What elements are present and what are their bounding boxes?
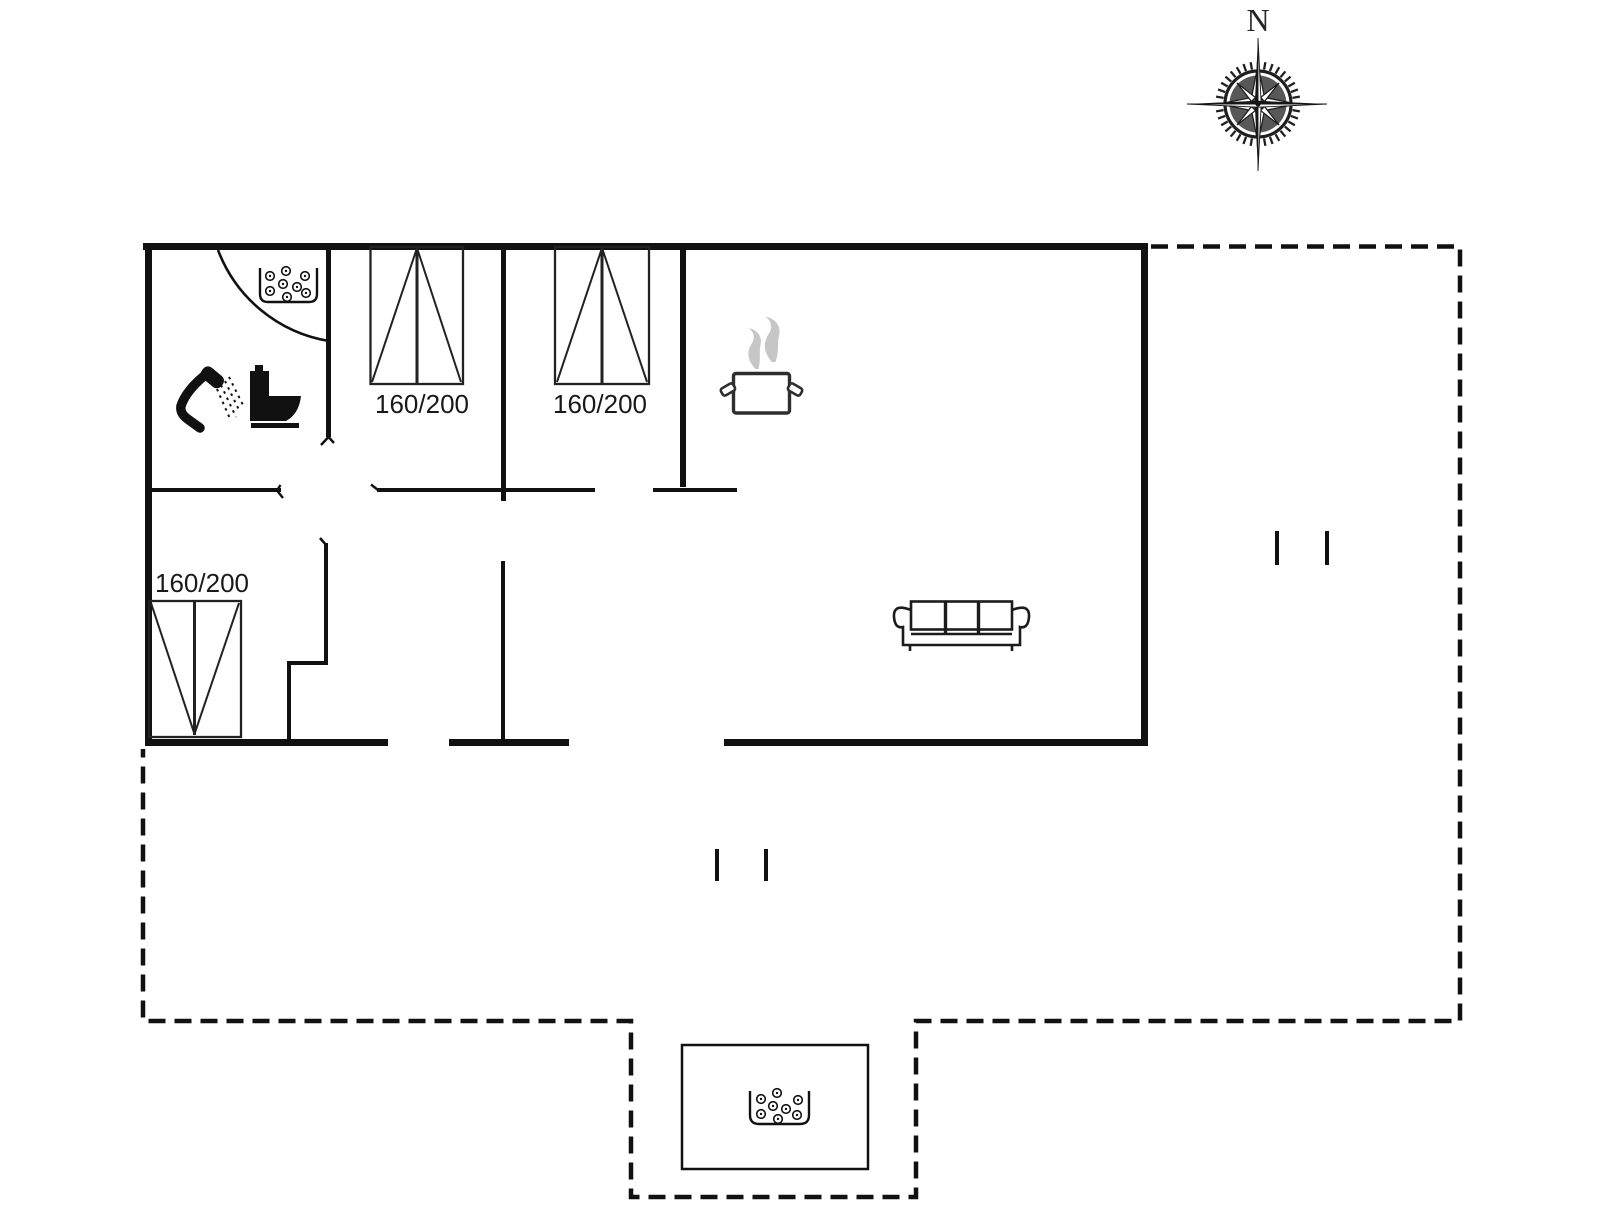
svg-text:160/200: 160/200 [155, 568, 249, 598]
svg-text:N: N [1246, 2, 1269, 38]
svg-text:160/200: 160/200 [553, 389, 647, 419]
svg-text:160/200: 160/200 [375, 389, 469, 419]
